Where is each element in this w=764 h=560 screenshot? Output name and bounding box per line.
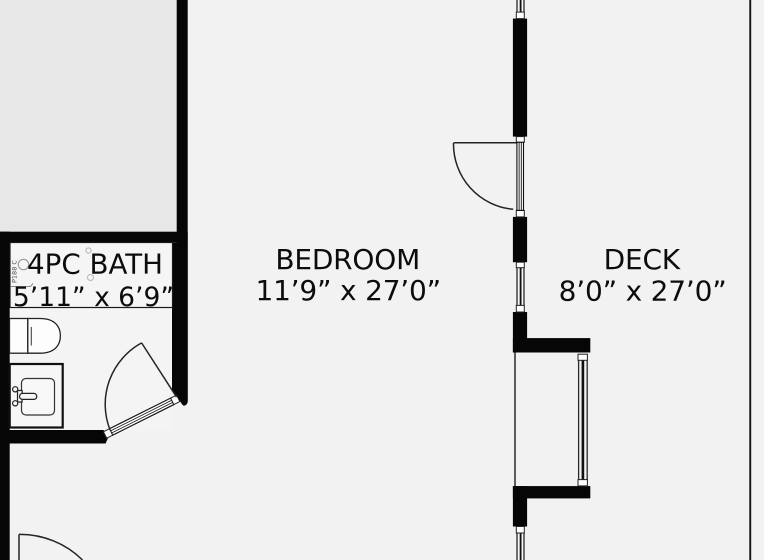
svg-text:P188 C: P188 C bbox=[11, 260, 19, 283]
svg-text:5’11” x 6’9”: 5’11” x 6’9” bbox=[13, 282, 174, 313]
svg-text:4PC BATH: 4PC BATH bbox=[27, 248, 163, 281]
svg-text:BEDROOM: BEDROOM bbox=[275, 243, 420, 276]
svg-text:8’0” x 27’0”: 8’0” x 27’0” bbox=[559, 275, 727, 308]
svg-text:11’9” x 27’0”: 11’9” x 27’0” bbox=[255, 274, 440, 307]
svg-text:DECK: DECK bbox=[604, 243, 681, 276]
